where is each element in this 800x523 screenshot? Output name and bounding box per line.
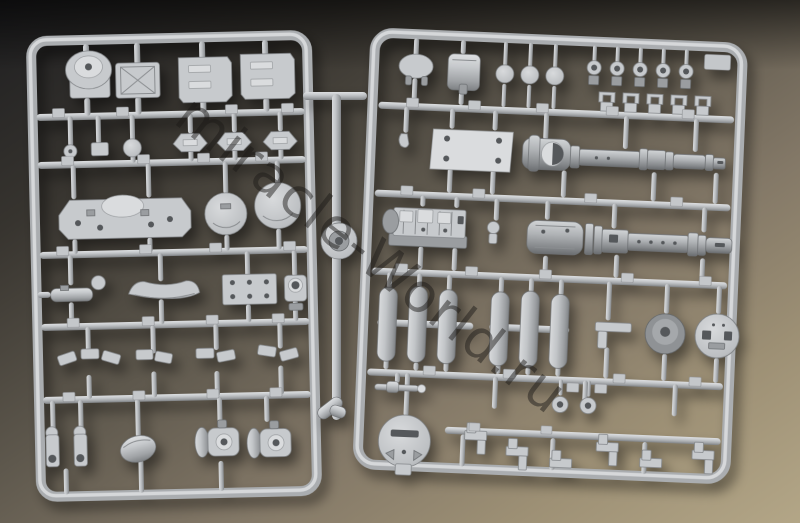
towing-shackle-part [46,427,60,467]
sprue-corner-tag [704,54,731,70]
wheel-disc-part [204,192,247,235]
tow-hook-part [399,134,410,148]
cupola-hatch-part [65,50,112,98]
wheel-cap-part [520,66,539,85]
cylinder-drum-part [447,54,481,95]
bolted-plate-part [222,274,277,305]
sprue-photo: miracle-World.ru [0,0,800,523]
part-number-tag [595,384,607,393]
stowage-box-part [240,53,295,99]
wheel-cap-part [495,65,514,84]
photo-canvas: miracle-World.ru [0,0,800,523]
towing-shackle-part [74,426,88,466]
small-block-part [91,142,108,155]
hull-deck-part [58,194,191,240]
ball-mount-part [123,139,141,157]
wheel-cap-part [545,67,564,86]
eyelet-part [580,397,597,414]
x-brace-hatch-part [115,62,160,98]
engine-deck-plate-part [430,129,514,172]
small-cap-part [64,145,77,158]
